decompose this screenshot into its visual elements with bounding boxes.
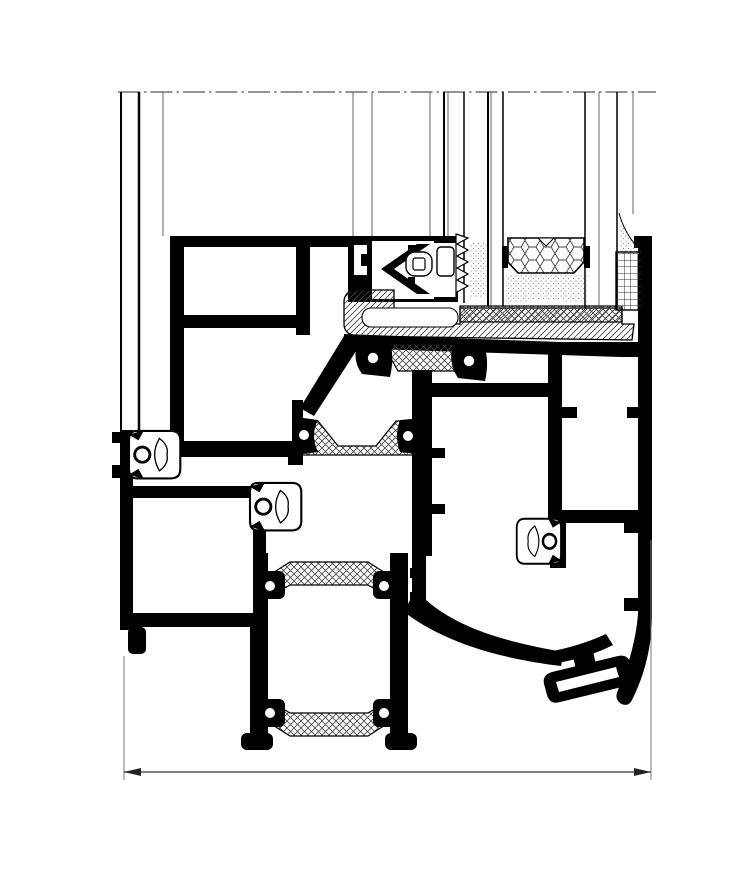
cad-viewport bbox=[0, 0, 737, 882]
setting-block bbox=[460, 306, 622, 322]
dim-arrow-right bbox=[634, 768, 651, 776]
section-drawing bbox=[0, 0, 737, 882]
grid-seal bbox=[616, 213, 643, 310]
dim-arrow-left bbox=[124, 768, 141, 776]
serrated-gasket bbox=[456, 234, 468, 298]
